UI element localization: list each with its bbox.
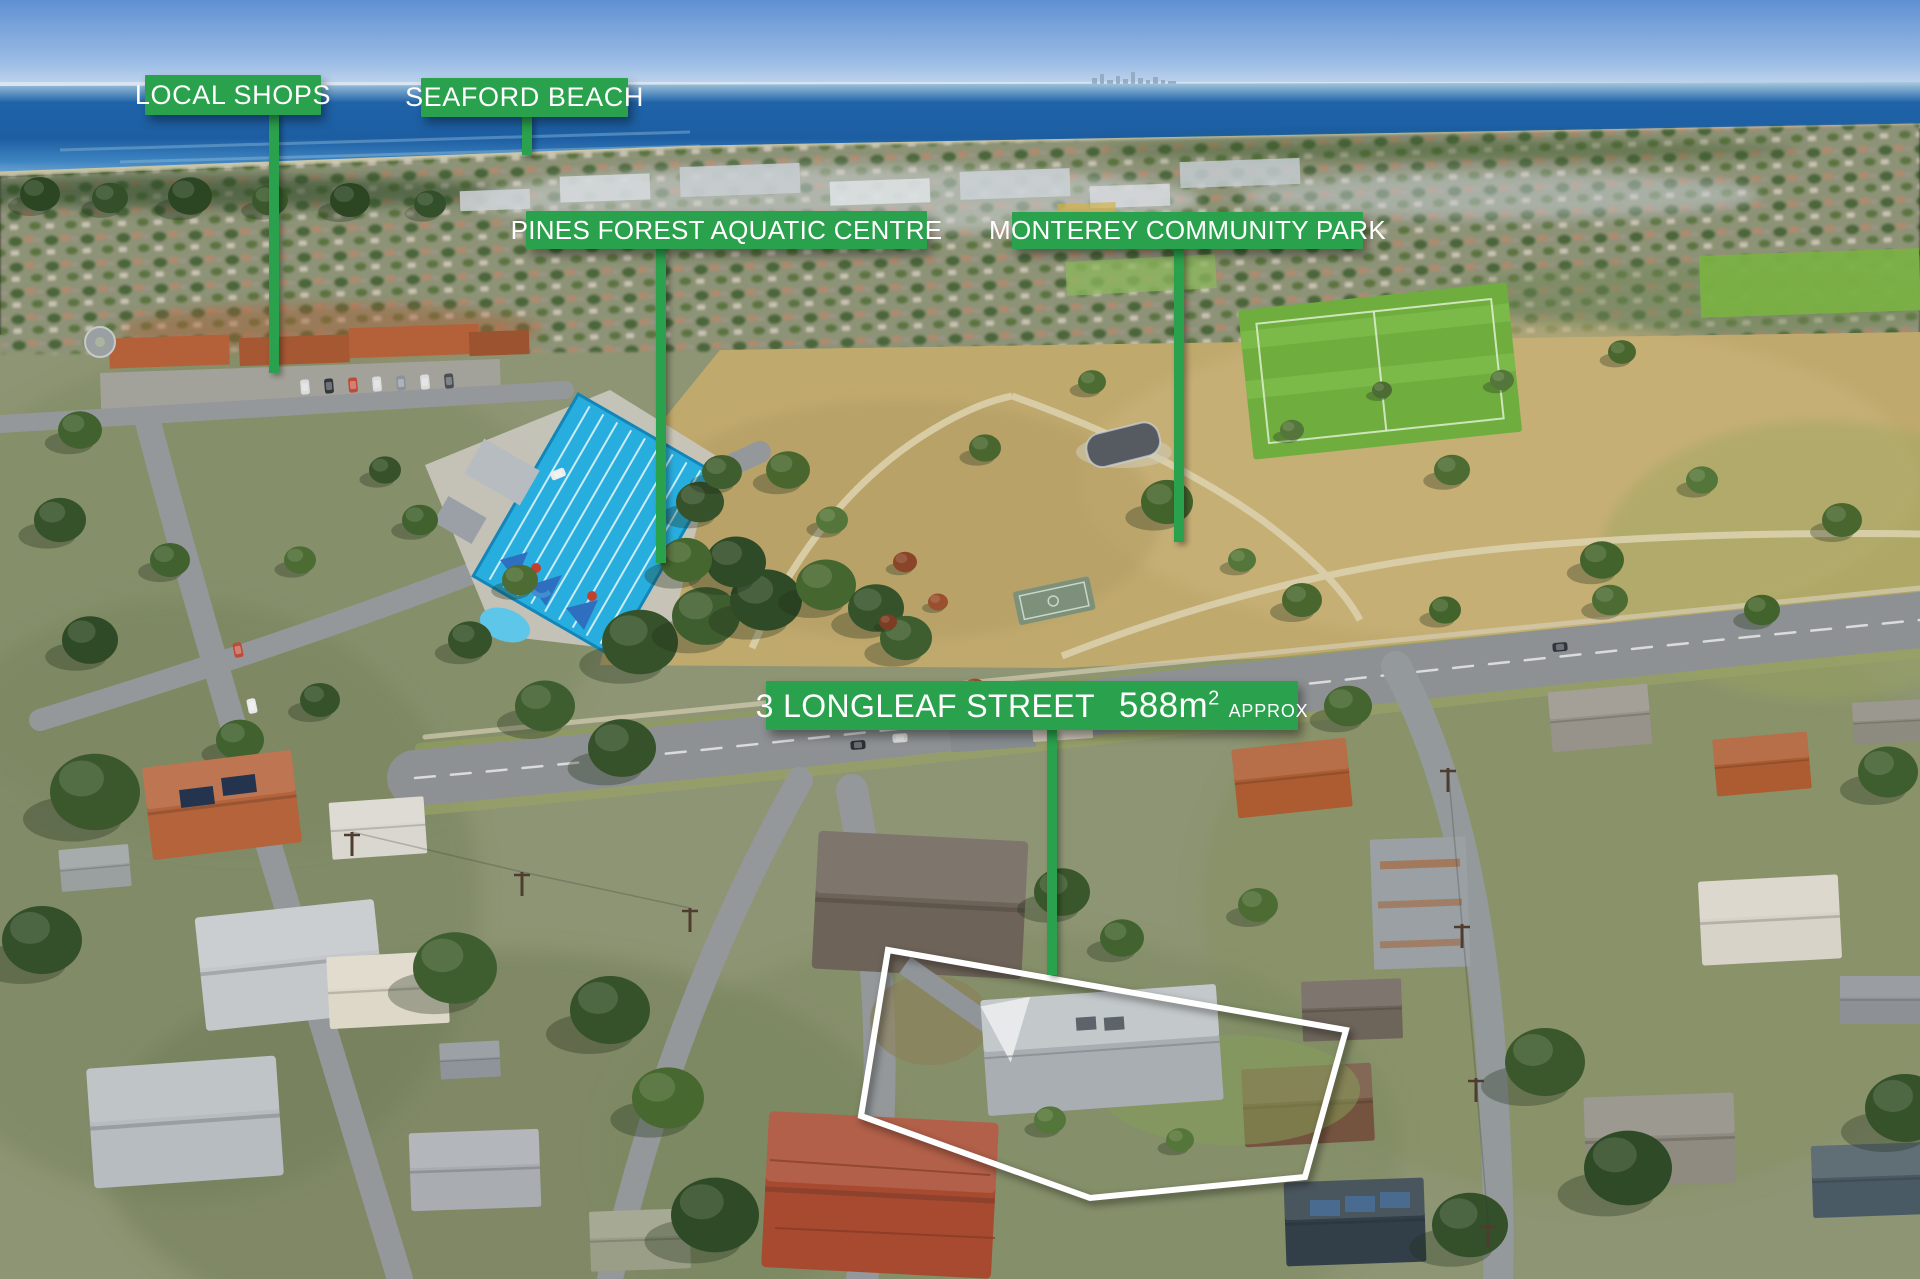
pointer-line-seaford-beach	[522, 115, 532, 155]
pointer-line-aquatic-centre	[656, 247, 666, 563]
property-area-superscript: 2	[1208, 687, 1220, 709]
label-aquatic-centre-text: PINES FOREST AQUATIC CENTRE	[511, 215, 943, 246]
property-area-qualifier: APPROX	[1229, 701, 1309, 721]
label-community-park: MONTEREY COMMUNITY PARK	[1012, 212, 1363, 249]
label-seaford-beach: SEAFORD BEACH	[421, 78, 628, 117]
pointer-line-local-shops	[269, 113, 279, 373]
property-boundary	[0, 0, 1920, 1279]
label-seaford-beach-text: SEAFORD BEACH	[405, 82, 644, 113]
label-property-address: 3 LONGLEAF STREET588m2APPROX	[766, 681, 1298, 730]
label-community-park-text: MONTEREY COMMUNITY PARK	[989, 215, 1386, 246]
aerial-property-photo: LOCAL SHOPS SEAFORD BEACH PINES FOREST A…	[0, 0, 1920, 1279]
label-aquatic-centre: PINES FOREST AQUATIC CENTRE	[526, 211, 927, 249]
pointer-line-property	[1047, 728, 1057, 975]
property-street-text: 3 LONGLEAF STREET	[756, 688, 1095, 724]
property-area-value: 588m2	[1119, 686, 1220, 725]
property-boundary-polygon	[861, 950, 1346, 1198]
pointer-line-community-park	[1174, 247, 1184, 542]
label-local-shops: LOCAL SHOPS	[145, 75, 321, 115]
label-local-shops-text: LOCAL SHOPS	[135, 80, 331, 111]
